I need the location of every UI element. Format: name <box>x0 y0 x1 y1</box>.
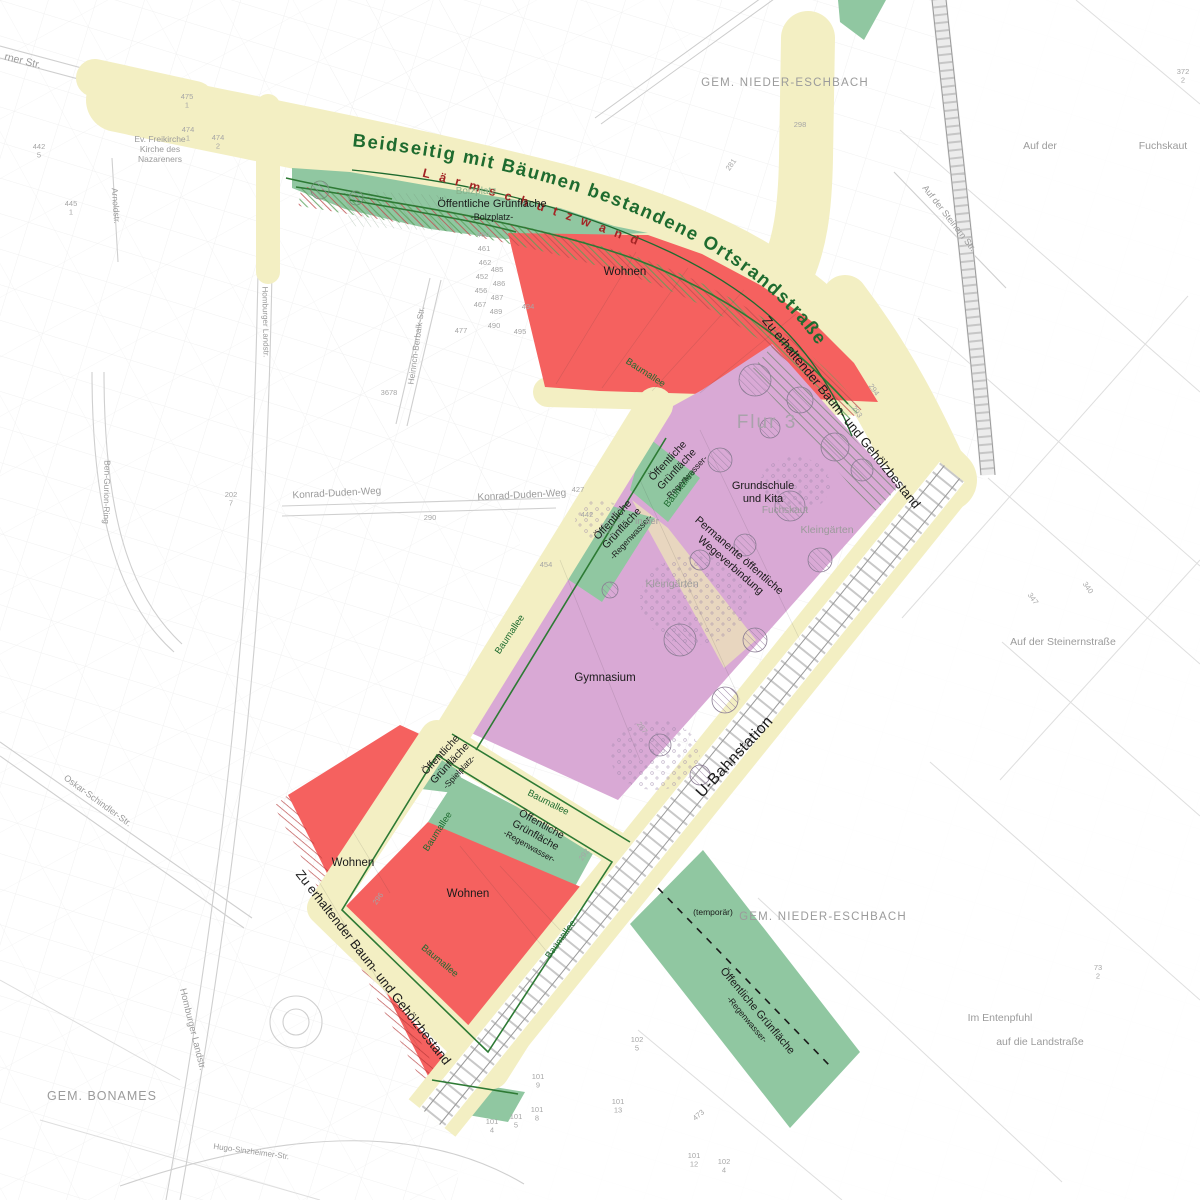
parcel-number-3678: 3678 <box>381 388 398 397</box>
north-road <box>788 38 808 270</box>
label-wohnen-top: Wohnen <box>604 266 647 278</box>
label-wohnen-left: Wohnen <box>332 857 375 869</box>
label-flur-3: Flur 3 <box>737 412 798 433</box>
label-bolzplatz-historic: Bolzplatz <box>456 186 497 197</box>
label-auf-die-landstrasse: auf die Landstraße <box>996 1036 1084 1048</box>
parcel-number-427: 427 <box>572 485 585 494</box>
parcel-number-454: 454 <box>540 560 553 569</box>
parcel-number-460: 460 <box>477 230 490 239</box>
parcel-number-442: 442 <box>581 510 594 519</box>
parcel-number-489: 489 <box>490 307 503 316</box>
label-auf-der-steinernstrasse: Auf der Steinernstraße <box>1010 636 1116 648</box>
label-wohnen-inner: Wohnen <box>447 888 490 900</box>
label-gem-bonames: GEM. BONAMES <box>47 1089 157 1103</box>
parcel-number-290: 290 <box>424 513 437 522</box>
parcel-number-298: 298 <box>794 120 807 129</box>
label-fuchskaut-flur: Fuchskaut <box>762 505 808 516</box>
label-gem-nieder-eschbach-top: GEM. NIEDER-ESCHBACH <box>701 77 869 89</box>
parcel-number-485: 485 <box>491 265 504 274</box>
parcel-number-456: 456 <box>475 286 488 295</box>
parcel-number-494: 494 <box>522 302 535 311</box>
parcel-number-467: 467 <box>474 300 487 309</box>
parcel-number-490: 490 <box>488 321 501 330</box>
label-kleingaerten-2: Kleingärten <box>645 578 698 590</box>
parcel-number-477: 477 <box>455 326 468 335</box>
label-temporaer: (temporär) <box>693 907 733 917</box>
parcel-number-487: 487 <box>491 293 504 302</box>
label-in-der: in der <box>635 516 659 527</box>
label-ben-gurion-ring: Ben-Gurion-Ring <box>101 460 112 524</box>
parcel-number-461: 461 <box>478 244 491 253</box>
site-plan-map: Beidseitig mit Bäumen bestandene Ortsran… <box>0 0 1200 1200</box>
parcel-number-462: 462 <box>479 258 492 267</box>
label-fuchskaut-ne: Fuchskaut <box>1139 140 1188 152</box>
parcel-number-486: 486 <box>493 279 506 288</box>
label-homburger-landstr-n: Homburger Landstr. <box>260 287 270 358</box>
label-auf-der: Auf der <box>1023 140 1057 152</box>
parcel-number-495: 495 <box>514 327 527 336</box>
parcel-number-452: 452 <box>476 272 489 281</box>
label-kleingaerten-1: Kleingärten <box>800 524 853 536</box>
label-gymnasium: Gymnasium <box>574 672 635 684</box>
label-ev-kirche: Ev. FreikircheKirche desNazareners <box>134 134 186 164</box>
map-canvas: Beidseitig mit Bäumen bestandene Ortsran… <box>0 0 1200 1200</box>
label-gem-nieder-eschbach-bottom: GEM. NIEDER-ESCHBACH <box>739 911 907 923</box>
label-im-entenpfuhl: Im Entenpfuhl <box>968 1012 1033 1024</box>
